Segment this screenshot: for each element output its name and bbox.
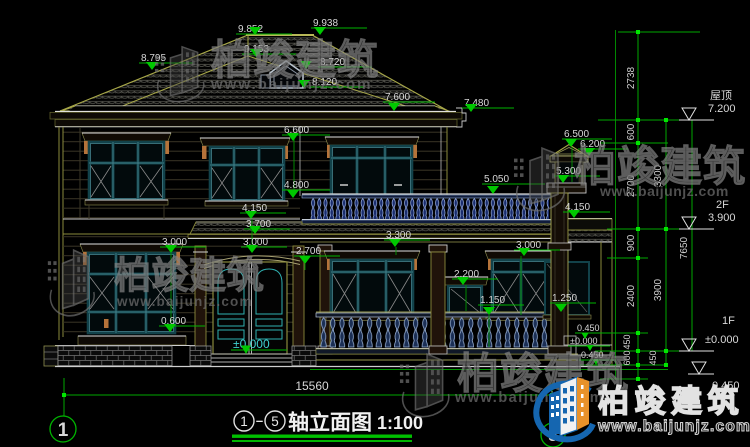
svg-text:600: 600 <box>626 123 637 140</box>
svg-text:450: 450 <box>648 350 658 365</box>
svg-text:柏竣建筑: 柏竣建筑 <box>598 384 744 419</box>
svg-text:1F: 1F <box>722 315 735 327</box>
svg-text:www.baijunjz.com: www.baijunjz.com <box>210 76 372 93</box>
svg-text:–: – <box>256 413 263 428</box>
svg-text:7650: 7650 <box>679 236 690 259</box>
svg-text:7.200: 7.200 <box>708 103 736 115</box>
svg-text:3.900: 3.900 <box>708 212 736 224</box>
svg-text:2400: 2400 <box>626 284 637 307</box>
svg-text:4.800: 4.800 <box>284 180 309 191</box>
svg-text:柏竣建筑: 柏竣建筑 <box>114 254 264 296</box>
svg-text:www.baijunjz.com: www.baijunjz.com <box>116 294 253 309</box>
svg-text:轴立面图: 轴立面图 <box>288 411 372 435</box>
svg-text:www.baijunjz.com: www.baijunjz.com <box>599 183 729 199</box>
svg-text:www.baijunjz.com: www.baijunjz.com <box>597 418 750 435</box>
svg-text:1: 1 <box>58 420 69 441</box>
svg-text:2738: 2738 <box>626 66 637 89</box>
svg-text:2F: 2F <box>716 199 729 211</box>
svg-text:450: 450 <box>622 334 632 349</box>
svg-text:900: 900 <box>626 234 637 251</box>
svg-text:5.050: 5.050 <box>484 174 509 185</box>
svg-text:0.450: 0.450 <box>577 323 600 333</box>
svg-text:2.700: 2.700 <box>296 246 321 257</box>
svg-text:3900: 3900 <box>653 278 664 301</box>
svg-text:7.600: 7.600 <box>385 92 410 103</box>
svg-text:9.852: 9.852 <box>238 24 263 35</box>
svg-text:±0.000: ±0.000 <box>233 337 270 351</box>
svg-text:1.250: 1.250 <box>552 293 577 304</box>
svg-text:1.150: 1.150 <box>480 295 505 306</box>
svg-text:屋顶: 屋顶 <box>710 89 732 102</box>
svg-text:15560: 15560 <box>295 379 329 393</box>
svg-text:±0.000: ±0.000 <box>705 334 739 346</box>
svg-text:1: 1 <box>240 414 248 429</box>
svg-text:5: 5 <box>271 414 279 429</box>
svg-text:±0.000: ±0.000 <box>570 336 597 346</box>
